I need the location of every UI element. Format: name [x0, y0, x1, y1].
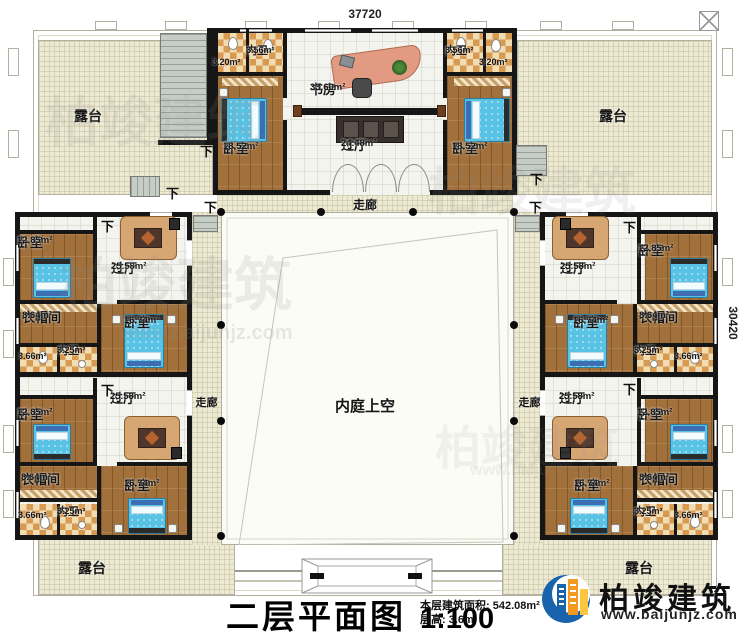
- railing-post: [540, 21, 562, 30]
- wall: [217, 72, 283, 76]
- window: [714, 492, 717, 518]
- tv-cabinet-icon: [295, 108, 443, 115]
- column-dot: [217, 417, 225, 425]
- plant-icon: [392, 60, 407, 75]
- railing-post: [3, 330, 14, 358]
- wall: [117, 300, 192, 304]
- sink-icon: [650, 360, 658, 368]
- railing-post: [722, 425, 733, 453]
- bed-icon: [221, 98, 267, 142]
- nightstand-icon: [219, 88, 228, 97]
- sink-icon: [78, 521, 86, 529]
- down-label: 下: [529, 197, 542, 216]
- stairs-icon: [515, 215, 540, 232]
- railing-post: [722, 258, 733, 286]
- railing-post: [3, 258, 14, 286]
- logo-icon: [540, 569, 596, 627]
- wall: [540, 462, 617, 466]
- bed-icon: [670, 258, 708, 298]
- down-label: 下: [166, 183, 179, 202]
- wall: [637, 462, 718, 466]
- column-dot: [510, 321, 518, 329]
- column-dot: [409, 208, 417, 216]
- drawing-info: 本层建筑面积: 542.08m² 层高: 3.6m: [420, 599, 540, 627]
- wall: [20, 230, 93, 234]
- wall: [283, 120, 287, 195]
- tv-icon: [169, 218, 180, 230]
- window: [372, 29, 418, 32]
- column-dot: [217, 208, 225, 216]
- wardrobe-strip: [20, 490, 97, 498]
- bed-icon: [670, 424, 708, 460]
- logo-website: www.baijunjz.com: [601, 606, 738, 622]
- wall: [213, 28, 218, 195]
- wall: [20, 498, 97, 502]
- floor-area-info: 本层建筑面积: 542.08m²: [420, 599, 540, 613]
- nightstand-icon: [114, 524, 123, 533]
- nightstand-icon: [112, 315, 121, 324]
- wall: [540, 212, 545, 375]
- railing-post: [8, 48, 19, 76]
- wall: [637, 498, 713, 502]
- wall: [283, 28, 287, 98]
- wall: [213, 190, 330, 195]
- window: [714, 420, 717, 446]
- column-dot: [510, 208, 518, 216]
- toilet-icon: [491, 39, 501, 52]
- wall: [641, 230, 713, 234]
- dimension-right: 30420: [726, 288, 740, 358]
- wall: [641, 395, 713, 399]
- railing-post: [165, 21, 187, 30]
- window: [240, 29, 272, 32]
- window: [16, 318, 19, 344]
- nightstand-icon: [167, 315, 176, 324]
- corridor-label: 走廊: [347, 196, 383, 213]
- wall: [97, 466, 101, 535]
- nightstand-icon: [611, 524, 620, 533]
- corner-column-marker: [699, 11, 719, 31]
- bed-icon: [33, 424, 71, 460]
- wall: [15, 535, 192, 540]
- wall: [187, 212, 192, 375]
- wall: [540, 535, 718, 540]
- window: [714, 245, 717, 271]
- wall: [97, 304, 101, 372]
- terrace-label: 露台: [72, 558, 112, 578]
- tv-icon: [560, 218, 571, 230]
- window: [305, 29, 351, 32]
- down-label: 下: [623, 217, 636, 236]
- column-dot: [510, 417, 518, 425]
- railing-post: [722, 130, 733, 158]
- wardrobe-strip: [222, 78, 278, 86]
- wall: [443, 120, 447, 195]
- down-label: 下: [200, 141, 213, 160]
- wall: [637, 300, 718, 304]
- floor-plan-canvas: 37720 30420 露台 露台 露台 露台 走廊 走廊 走廊 内庭上空 下 …: [0, 0, 750, 635]
- chair-icon: [352, 78, 372, 98]
- window: [452, 29, 484, 32]
- corridor-right: [514, 212, 543, 545]
- terrace-label: 露台: [68, 106, 108, 126]
- door-gap: [540, 240, 545, 266]
- wall: [15, 462, 97, 466]
- floor-height-info: 层高: 3.6m: [420, 613, 540, 627]
- column-dot: [217, 321, 225, 329]
- courtyard-lines: [221, 212, 514, 545]
- railing-post: [612, 21, 634, 30]
- wall: [93, 378, 97, 466]
- toilet-icon: [228, 37, 238, 50]
- nightstand-icon: [555, 315, 564, 324]
- sink-icon: [650, 521, 658, 529]
- railing-post: [8, 130, 19, 158]
- stairs-icon: [130, 176, 160, 197]
- column-dot: [317, 208, 325, 216]
- down-label: 下: [530, 169, 543, 188]
- wall: [117, 462, 192, 466]
- railing-post: [3, 425, 14, 453]
- wardrobe-strip: [637, 490, 713, 498]
- wardrobe-strip: [454, 78, 510, 86]
- wall: [447, 72, 512, 76]
- cabinet-end: [437, 105, 446, 117]
- page-title: 二层平面图: [226, 598, 406, 635]
- bed-icon: [570, 498, 608, 534]
- courtyard-label: 内庭上空: [322, 395, 408, 416]
- window: [16, 420, 19, 446]
- window: [714, 318, 717, 344]
- nightstand-icon: [557, 524, 566, 533]
- wall: [15, 300, 97, 304]
- down-label: 下: [101, 216, 114, 235]
- tv-icon: [171, 447, 182, 459]
- down-label: 下: [204, 197, 217, 216]
- railing-post: [722, 48, 733, 76]
- cabinet-end: [293, 105, 302, 117]
- dimension-top: 37720: [330, 7, 400, 21]
- nightstand-icon: [168, 524, 177, 533]
- railing-post: [3, 490, 14, 518]
- bed-icon: [128, 498, 166, 534]
- terrace-bottom-left: [38, 538, 235, 595]
- wall: [443, 28, 447, 98]
- corridor-label: 走廊: [191, 394, 222, 410]
- column-dot: [217, 532, 225, 540]
- wall: [20, 395, 93, 399]
- corridor-left: [192, 212, 221, 545]
- wall: [207, 28, 213, 143]
- wall: [540, 300, 617, 304]
- wall: [633, 304, 637, 372]
- stairs-icon: [160, 33, 207, 138]
- terrace-label: 露台: [593, 106, 633, 126]
- tv-icon: [560, 447, 571, 459]
- column-dot: [510, 532, 518, 540]
- down-label: 下: [623, 379, 636, 398]
- nightstand-icon: [610, 315, 619, 324]
- nightstand-icon: [502, 88, 511, 97]
- door-gap: [187, 240, 192, 266]
- bed-icon: [464, 98, 510, 142]
- corridor-label: 走廊: [514, 394, 545, 410]
- wall: [713, 212, 718, 375]
- railing-post: [95, 21, 117, 30]
- bed-icon: [33, 258, 71, 298]
- stairs-icon: [193, 215, 218, 232]
- wall: [93, 212, 97, 304]
- sink-icon: [78, 360, 86, 368]
- railing-post: [722, 490, 733, 518]
